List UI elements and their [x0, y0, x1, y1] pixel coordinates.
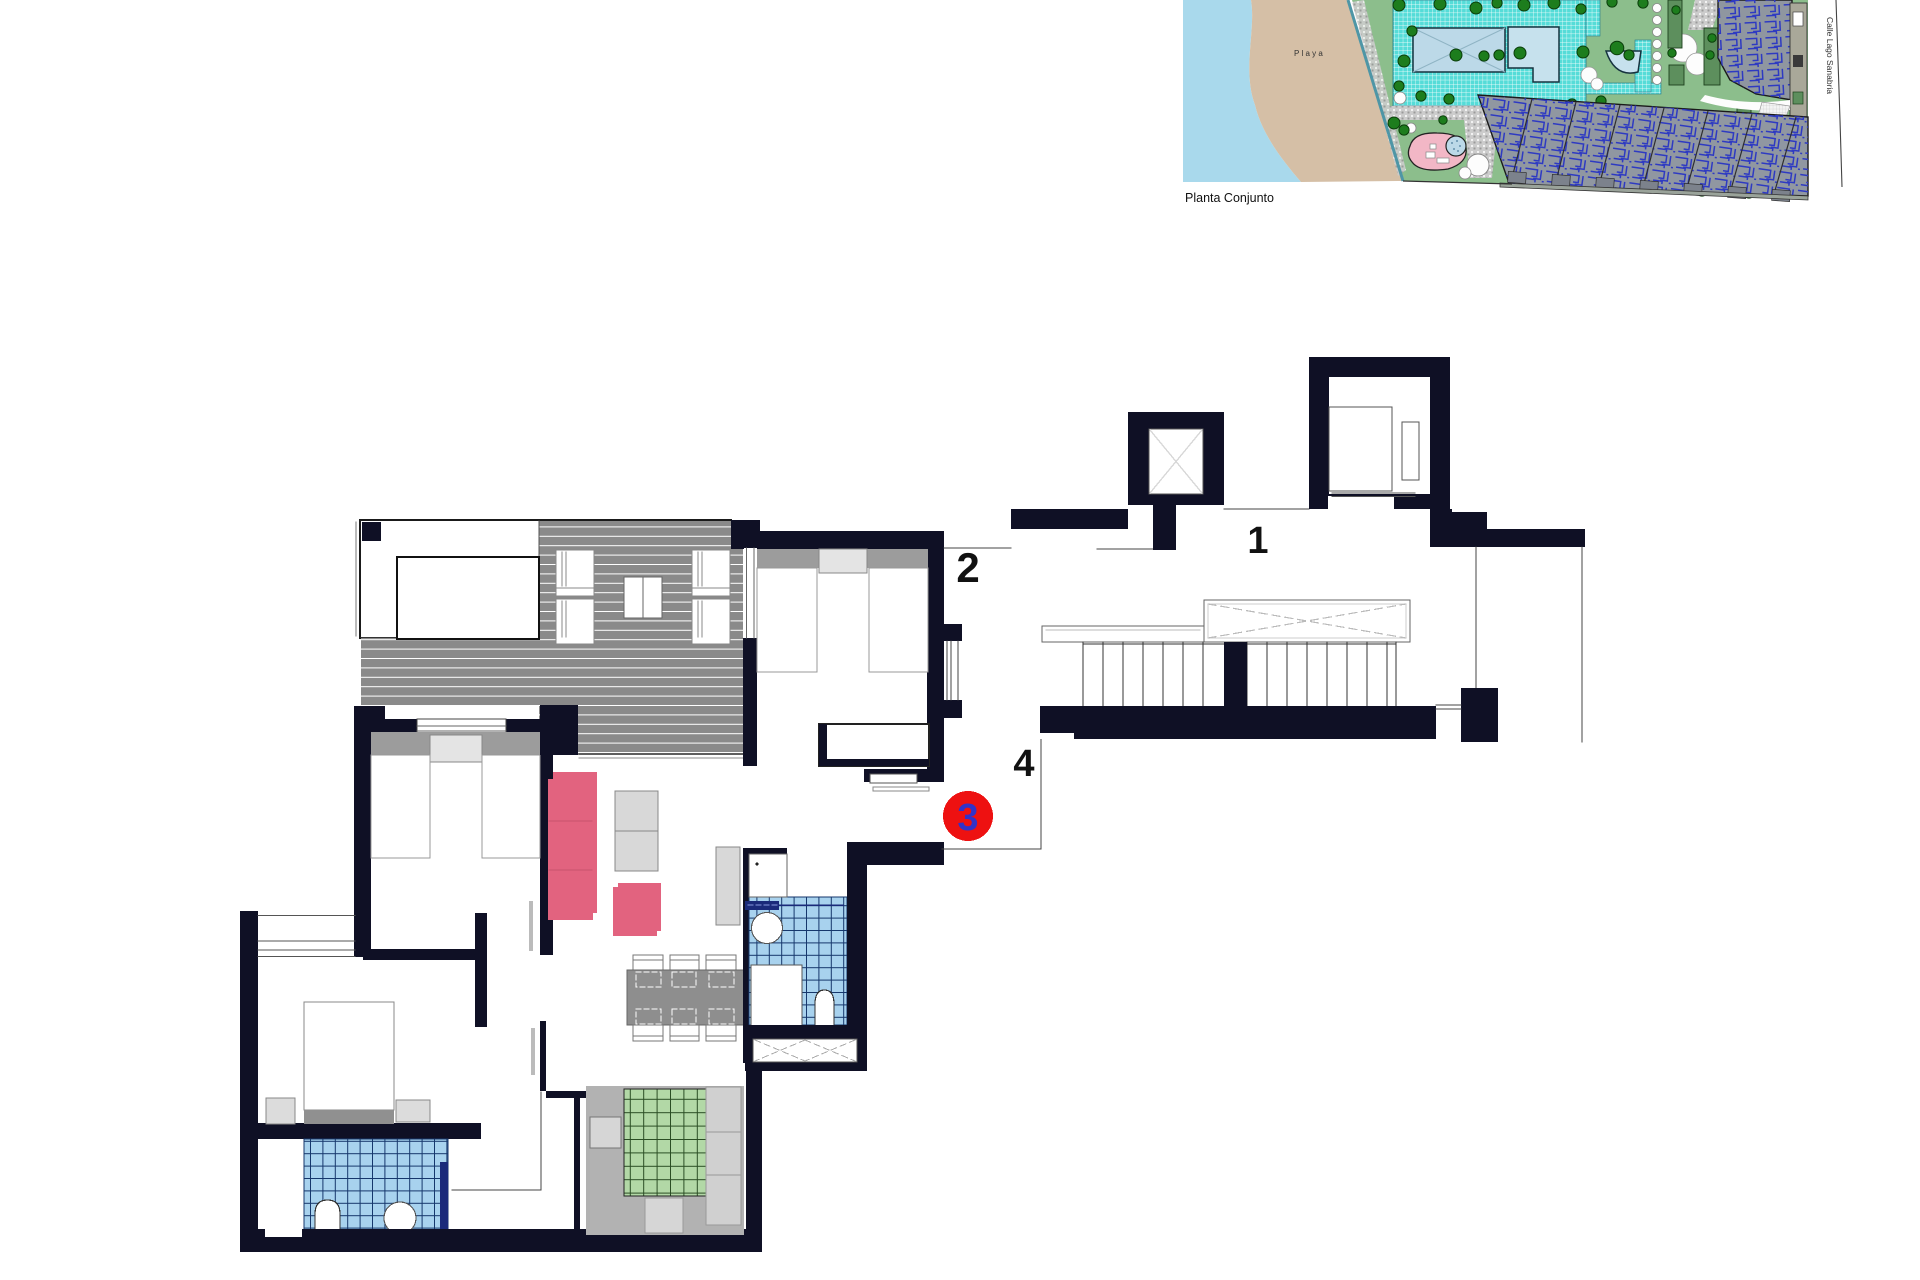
svg-text:2: 2 [956, 544, 979, 591]
svg-text:4: 4 [1013, 743, 1034, 785]
svg-text:Playa: Playa [1294, 49, 1325, 58]
svg-text:Planta Conjunto: Planta Conjunto [1185, 191, 1274, 205]
svg-text:Calle Lago Sanabria: Calle Lago Sanabria [1825, 17, 1835, 94]
svg-text:3: 3 [957, 797, 978, 839]
svg-text:1: 1 [1247, 520, 1268, 562]
